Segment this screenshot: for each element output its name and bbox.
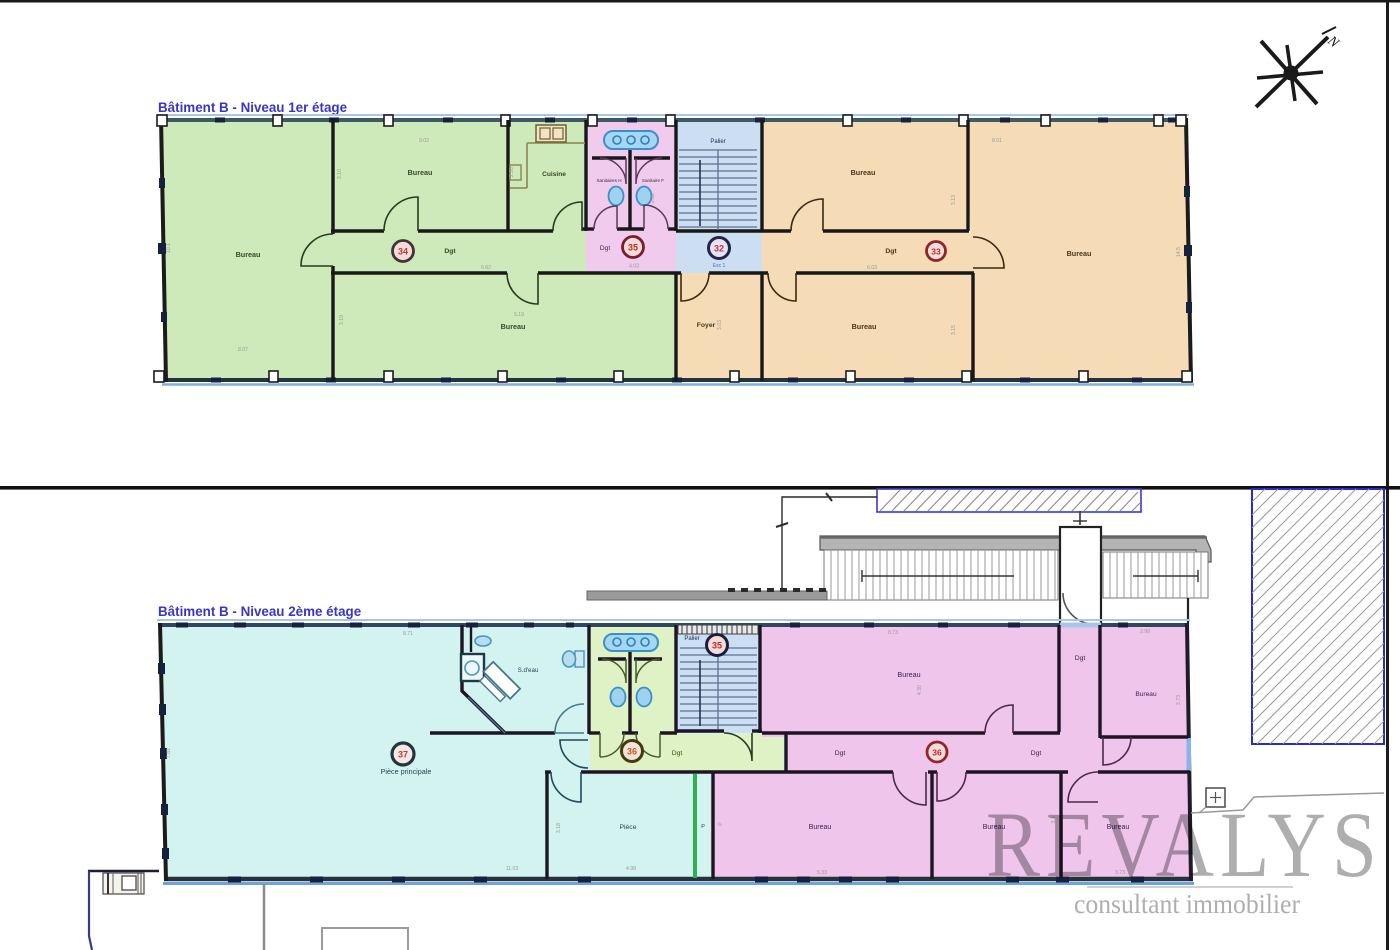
svg-text:9.02: 9.02 bbox=[419, 138, 429, 144]
svg-text:Cuisine: Cuisine bbox=[542, 171, 566, 178]
svg-text:4.98: 4.98 bbox=[626, 866, 636, 872]
svg-text:2.02: 2.02 bbox=[650, 193, 656, 203]
svg-text:Dgt: Dgt bbox=[885, 248, 897, 255]
svg-text:Bureau: Bureau bbox=[809, 824, 832, 831]
svg-text:6.62: 6.62 bbox=[481, 265, 491, 271]
svg-text:3.15: 3.15 bbox=[951, 325, 957, 335]
svg-text:Sanitaire F: Sanitaire F bbox=[642, 178, 664, 183]
svg-text:36: 36 bbox=[932, 748, 942, 758]
svg-text:Dgt: Dgt bbox=[1075, 655, 1086, 662]
svg-text:35: 35 bbox=[628, 243, 638, 253]
svg-text:11.03: 11.03 bbox=[506, 866, 519, 872]
svg-text:2.20: 2.20 bbox=[509, 167, 515, 177]
svg-text:3.19: 3.19 bbox=[339, 315, 345, 325]
svg-text:3.13: 3.13 bbox=[951, 195, 957, 205]
svg-text:Bureau: Bureau bbox=[852, 322, 877, 331]
svg-text:8.71: 8.71 bbox=[403, 631, 413, 637]
svg-text:Pièce: Pièce bbox=[619, 824, 636, 831]
svg-text:Dgt: Dgt bbox=[444, 248, 456, 255]
svg-text:Dgt: Dgt bbox=[835, 750, 846, 757]
svg-text:Pièce principale: Pièce principale bbox=[381, 767, 432, 776]
svg-text:4.03: 4.03 bbox=[629, 264, 639, 270]
svg-text:8.07: 8.07 bbox=[238, 347, 248, 353]
svg-text:Dgt: Dgt bbox=[672, 750, 683, 757]
svg-text:Bureau: Bureau bbox=[408, 168, 433, 177]
svg-text:P: P bbox=[701, 824, 705, 830]
svg-text:7.81: 7.81 bbox=[166, 748, 172, 758]
svg-text:consultant immobilier: consultant immobilier bbox=[1074, 889, 1300, 919]
svg-text:Bureau: Bureau bbox=[1135, 691, 1157, 698]
svg-text:Bâtiment B - Niveau 1er étage: Bâtiment B - Niveau 1er étage bbox=[158, 100, 347, 115]
svg-text:P: P bbox=[718, 822, 724, 826]
svg-text:Bureau: Bureau bbox=[851, 168, 876, 177]
svg-text:Bureau: Bureau bbox=[1067, 249, 1092, 258]
svg-text:37: 37 bbox=[398, 750, 408, 760]
svg-text:Esc 1: Esc 1 bbox=[713, 263, 726, 269]
svg-text:35: 35 bbox=[712, 641, 722, 651]
svg-text:2.98: 2.98 bbox=[1140, 629, 1150, 635]
svg-text:3.10: 3.10 bbox=[337, 169, 343, 179]
svg-text:14.5: 14.5 bbox=[1176, 247, 1182, 257]
svg-text:Bureau: Bureau bbox=[501, 322, 526, 331]
svg-text:Palier: Palier bbox=[684, 636, 699, 642]
svg-text:Palier: Palier bbox=[710, 139, 725, 145]
svg-text:3.73: 3.73 bbox=[1176, 695, 1182, 705]
svg-text:8.01: 8.01 bbox=[992, 138, 1002, 144]
svg-text:8.73: 8.73 bbox=[888, 630, 898, 636]
svg-text:3.03: 3.03 bbox=[717, 320, 723, 330]
svg-text:Bureau: Bureau bbox=[897, 670, 920, 679]
svg-text:34: 34 bbox=[398, 247, 408, 257]
svg-text:36: 36 bbox=[627, 747, 637, 757]
svg-text:5.33: 5.33 bbox=[817, 870, 827, 876]
svg-text:Dgt: Dgt bbox=[600, 245, 611, 252]
svg-text:10.1: 10.1 bbox=[166, 243, 172, 253]
svg-text:4.30: 4.30 bbox=[917, 685, 923, 695]
svg-text:Sanitaires H: Sanitaires H bbox=[596, 178, 621, 183]
svg-text:6.03: 6.03 bbox=[867, 265, 877, 271]
svg-text:Bureau: Bureau bbox=[236, 250, 261, 259]
svg-text:32: 32 bbox=[714, 244, 724, 254]
svg-text:S.d'eau: S.d'eau bbox=[518, 667, 539, 674]
svg-text:5.19: 5.19 bbox=[514, 312, 524, 318]
svg-text:REVALYS: REVALYS bbox=[986, 794, 1383, 897]
svg-text:33: 33 bbox=[931, 247, 941, 257]
svg-text:3.18: 3.18 bbox=[556, 823, 562, 833]
svg-text:Bâtiment B - Niveau 2ème étage: Bâtiment B - Niveau 2ème étage bbox=[158, 604, 361, 619]
svg-text:Dgt: Dgt bbox=[1031, 750, 1042, 757]
svg-text:Foyer: Foyer bbox=[697, 322, 716, 329]
